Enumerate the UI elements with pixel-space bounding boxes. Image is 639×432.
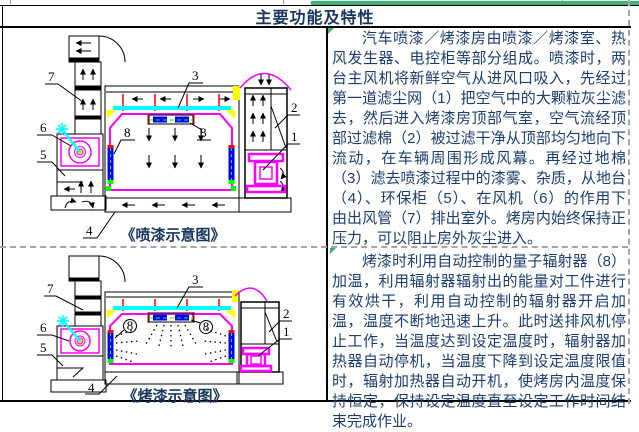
corner-duct-right [226, 110, 235, 119]
exhaust-fan-unit [56, 123, 103, 170]
callout-6: 6 [40, 320, 47, 335]
paragraph-bake-process: 烤漆时利用自动控制的量子辐射器（8）加温，利用辐射器辐射出的能量对工件进行有效烘… [332, 252, 626, 432]
callout-7: 7 [48, 69, 55, 84]
wall-radiator-left [108, 330, 114, 363]
intake-tower [239, 73, 291, 212]
callout-8-left: 8 [124, 125, 131, 140]
callout-1: 1 [291, 129, 298, 144]
green-cell-marker-top [328, 28, 334, 34]
ceiling-radiator [148, 114, 194, 125]
diagram-cell: 7 6 5 8 8 3 2 1 4 《喷漆示意图》 [3, 28, 326, 400]
intake-fan [241, 348, 271, 371]
wall-radiator-right [229, 330, 235, 363]
header: 主要功能及特性 [0, 6, 630, 26]
corner-duct-left [107, 310, 116, 319]
callout-8-left: 8 [127, 318, 134, 333]
corner-duct-left [107, 110, 116, 119]
eco-cabinet [57, 170, 103, 196]
green-cell-marker-mid [330, 248, 336, 254]
downdraft-arrows [149, 128, 201, 168]
callout-5: 5 [40, 147, 47, 162]
callout-3: 3 [192, 68, 199, 83]
gridline-tick [10, 0, 11, 4]
bake-diagram-caption: 《烤漆示意图》 [122, 387, 227, 404]
spray-room [105, 86, 240, 198]
corner-duct-right [226, 310, 235, 319]
callout-7: 7 [47, 281, 54, 296]
callout-2: 2 [291, 100, 298, 115]
callout-8-right: 8 [203, 319, 210, 334]
exhaust-duct [69, 256, 125, 326]
bake-room [105, 290, 239, 372]
callout-1: 1 [283, 324, 290, 339]
paragraph-spray-process: 汽车喷漆／烤漆房由喷漆／烤漆室、热风发生器、电控柜等部分组成。喷漆时，两台主风机… [332, 29, 626, 249]
ceiling-filter-cotton [113, 106, 231, 110]
intake-arc [235, 288, 267, 301]
exhaust-fan-unit [57, 315, 103, 356]
callout-3: 3 [192, 272, 199, 287]
callout-6: 6 [40, 120, 47, 135]
page-title: 主要功能及特性 [255, 4, 374, 28]
callout-8-right: 8 [200, 125, 207, 140]
callout-5: 5 [40, 340, 47, 355]
callout-4: 4 [86, 223, 93, 238]
intake-fan [247, 154, 285, 192]
duct-connector [233, 86, 240, 100]
eco-cabinet [57, 356, 103, 380]
intake-tower [235, 288, 283, 384]
page-break-horizontal [0, 246, 628, 248]
page-break-vertical [628, 0, 630, 404]
floor-base [105, 198, 239, 212]
spray-booth-diagram: 7 6 5 8 8 3 2 1 4 《喷漆示意图》 [3, 28, 329, 244]
spray-diagram-caption: 《喷漆示意图》 [120, 226, 225, 244]
callout-2: 2 [283, 306, 290, 321]
description-cell: 汽车喷漆／烤漆房由喷漆／烤漆室、热风发生器、电控柜等部分组成。喷漆时，两台主风机… [332, 29, 626, 432]
left-base-platform [51, 380, 106, 392]
left-base-platform [51, 196, 106, 210]
bake-booth-diagram: 7 6 5 8 8 3 2 1 4 《烤漆示意图》 [3, 244, 329, 404]
ceiling-filter-cotton [113, 306, 231, 310]
floor-base [105, 372, 239, 384]
callout-4: 4 [88, 380, 95, 395]
